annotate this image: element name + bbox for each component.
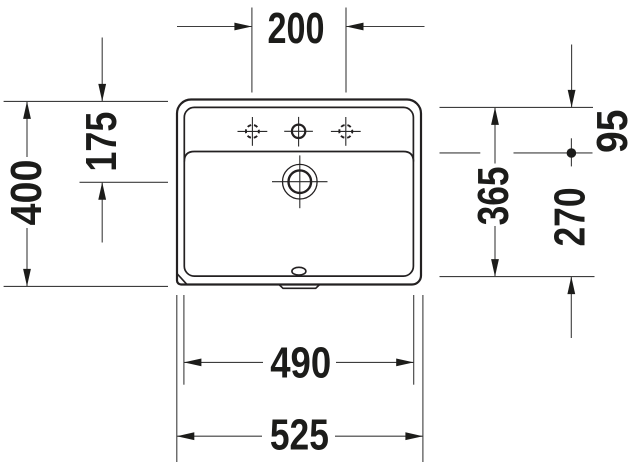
svg-text:525: 525	[270, 411, 329, 460]
svg-text:490: 490	[270, 339, 331, 388]
svg-text:270: 270	[546, 188, 595, 247]
svg-text:175: 175	[77, 112, 126, 172]
svg-text:365: 365	[469, 166, 518, 225]
svg-text:400: 400	[2, 160, 51, 226]
svg-text:95: 95	[588, 109, 637, 153]
svg-text:200: 200	[268, 4, 325, 53]
